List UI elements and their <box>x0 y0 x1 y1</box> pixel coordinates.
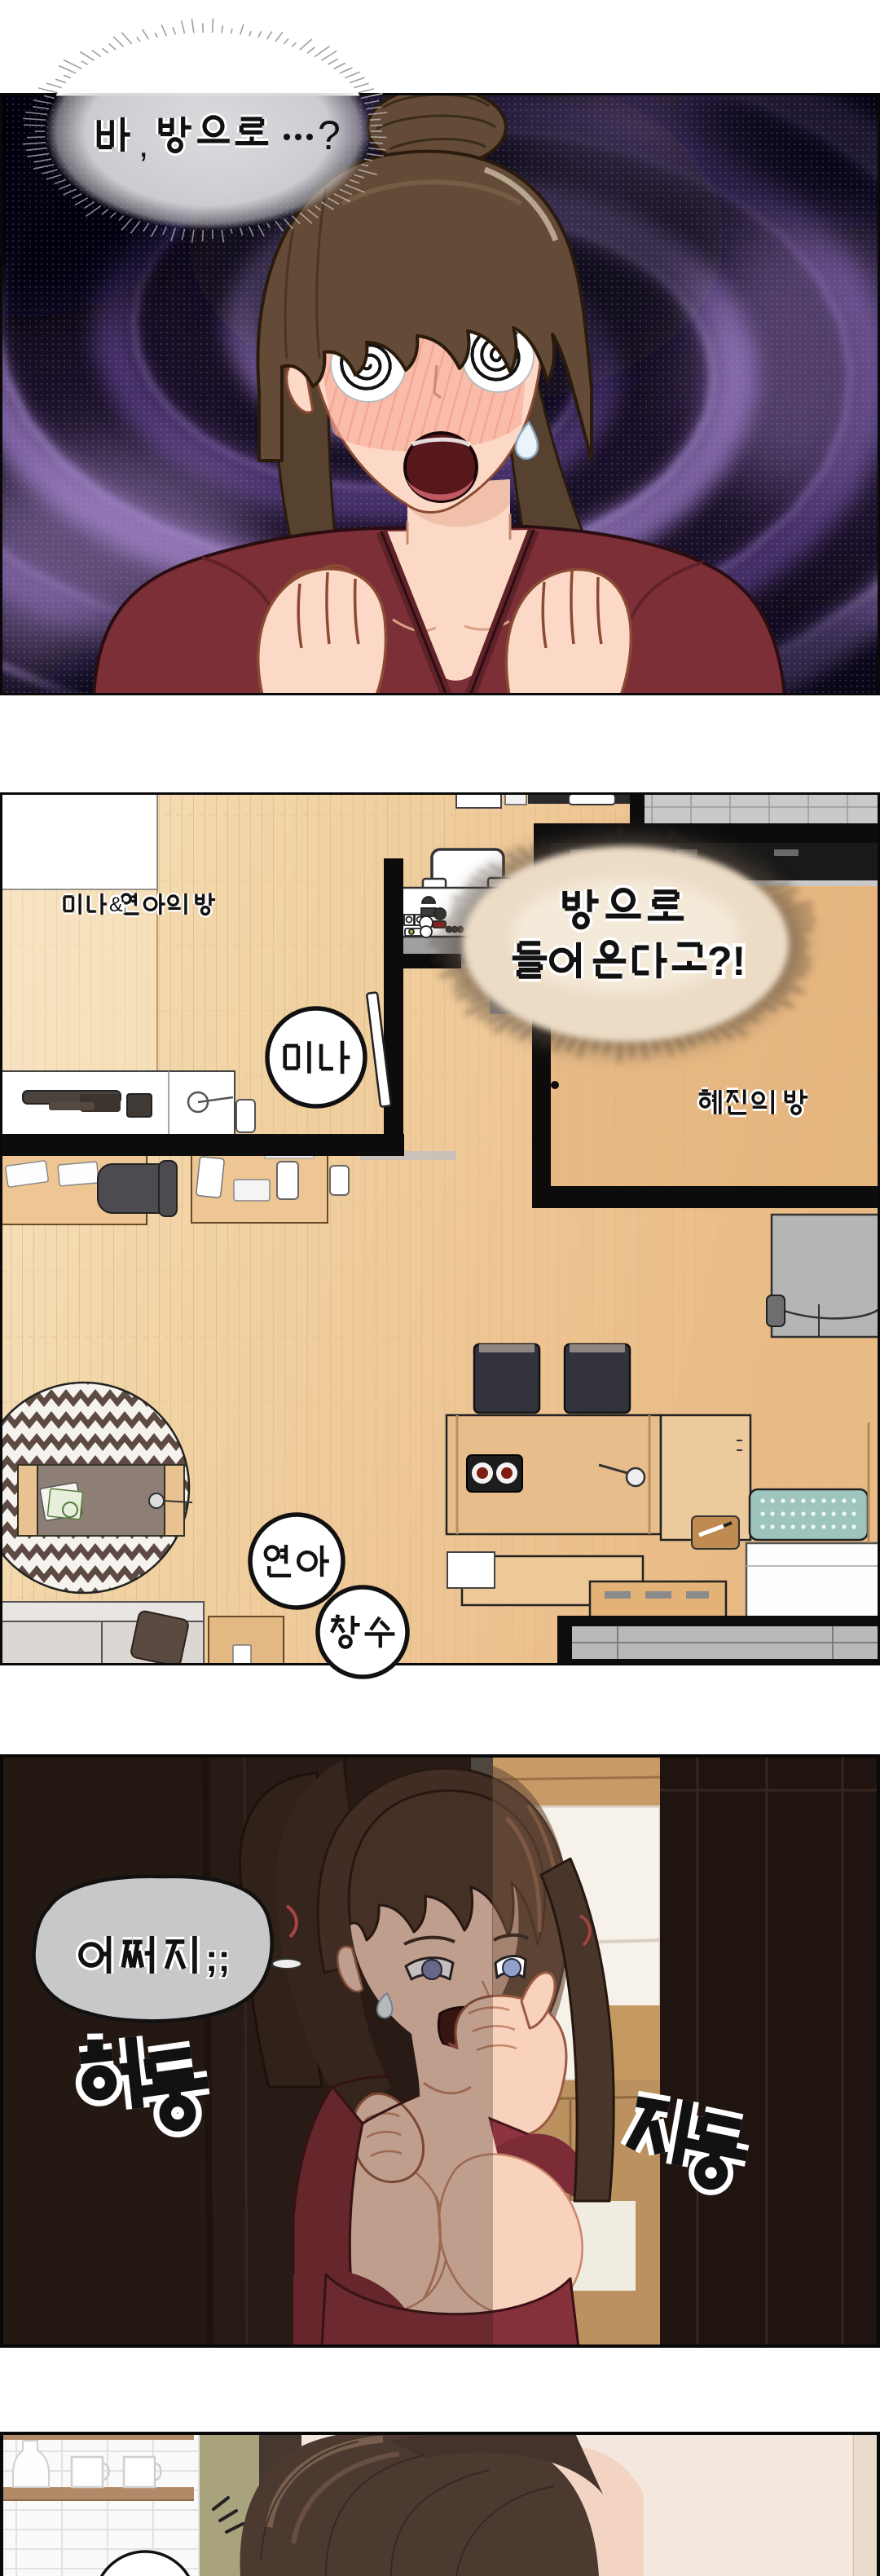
svg-text:;;: ;; <box>205 1937 231 1979</box>
svg-text:?!: ?! <box>707 938 746 984</box>
svg-text:&: & <box>109 893 123 916</box>
svg-text:,: , <box>139 125 148 165</box>
svg-text:?: ? <box>318 112 341 158</box>
